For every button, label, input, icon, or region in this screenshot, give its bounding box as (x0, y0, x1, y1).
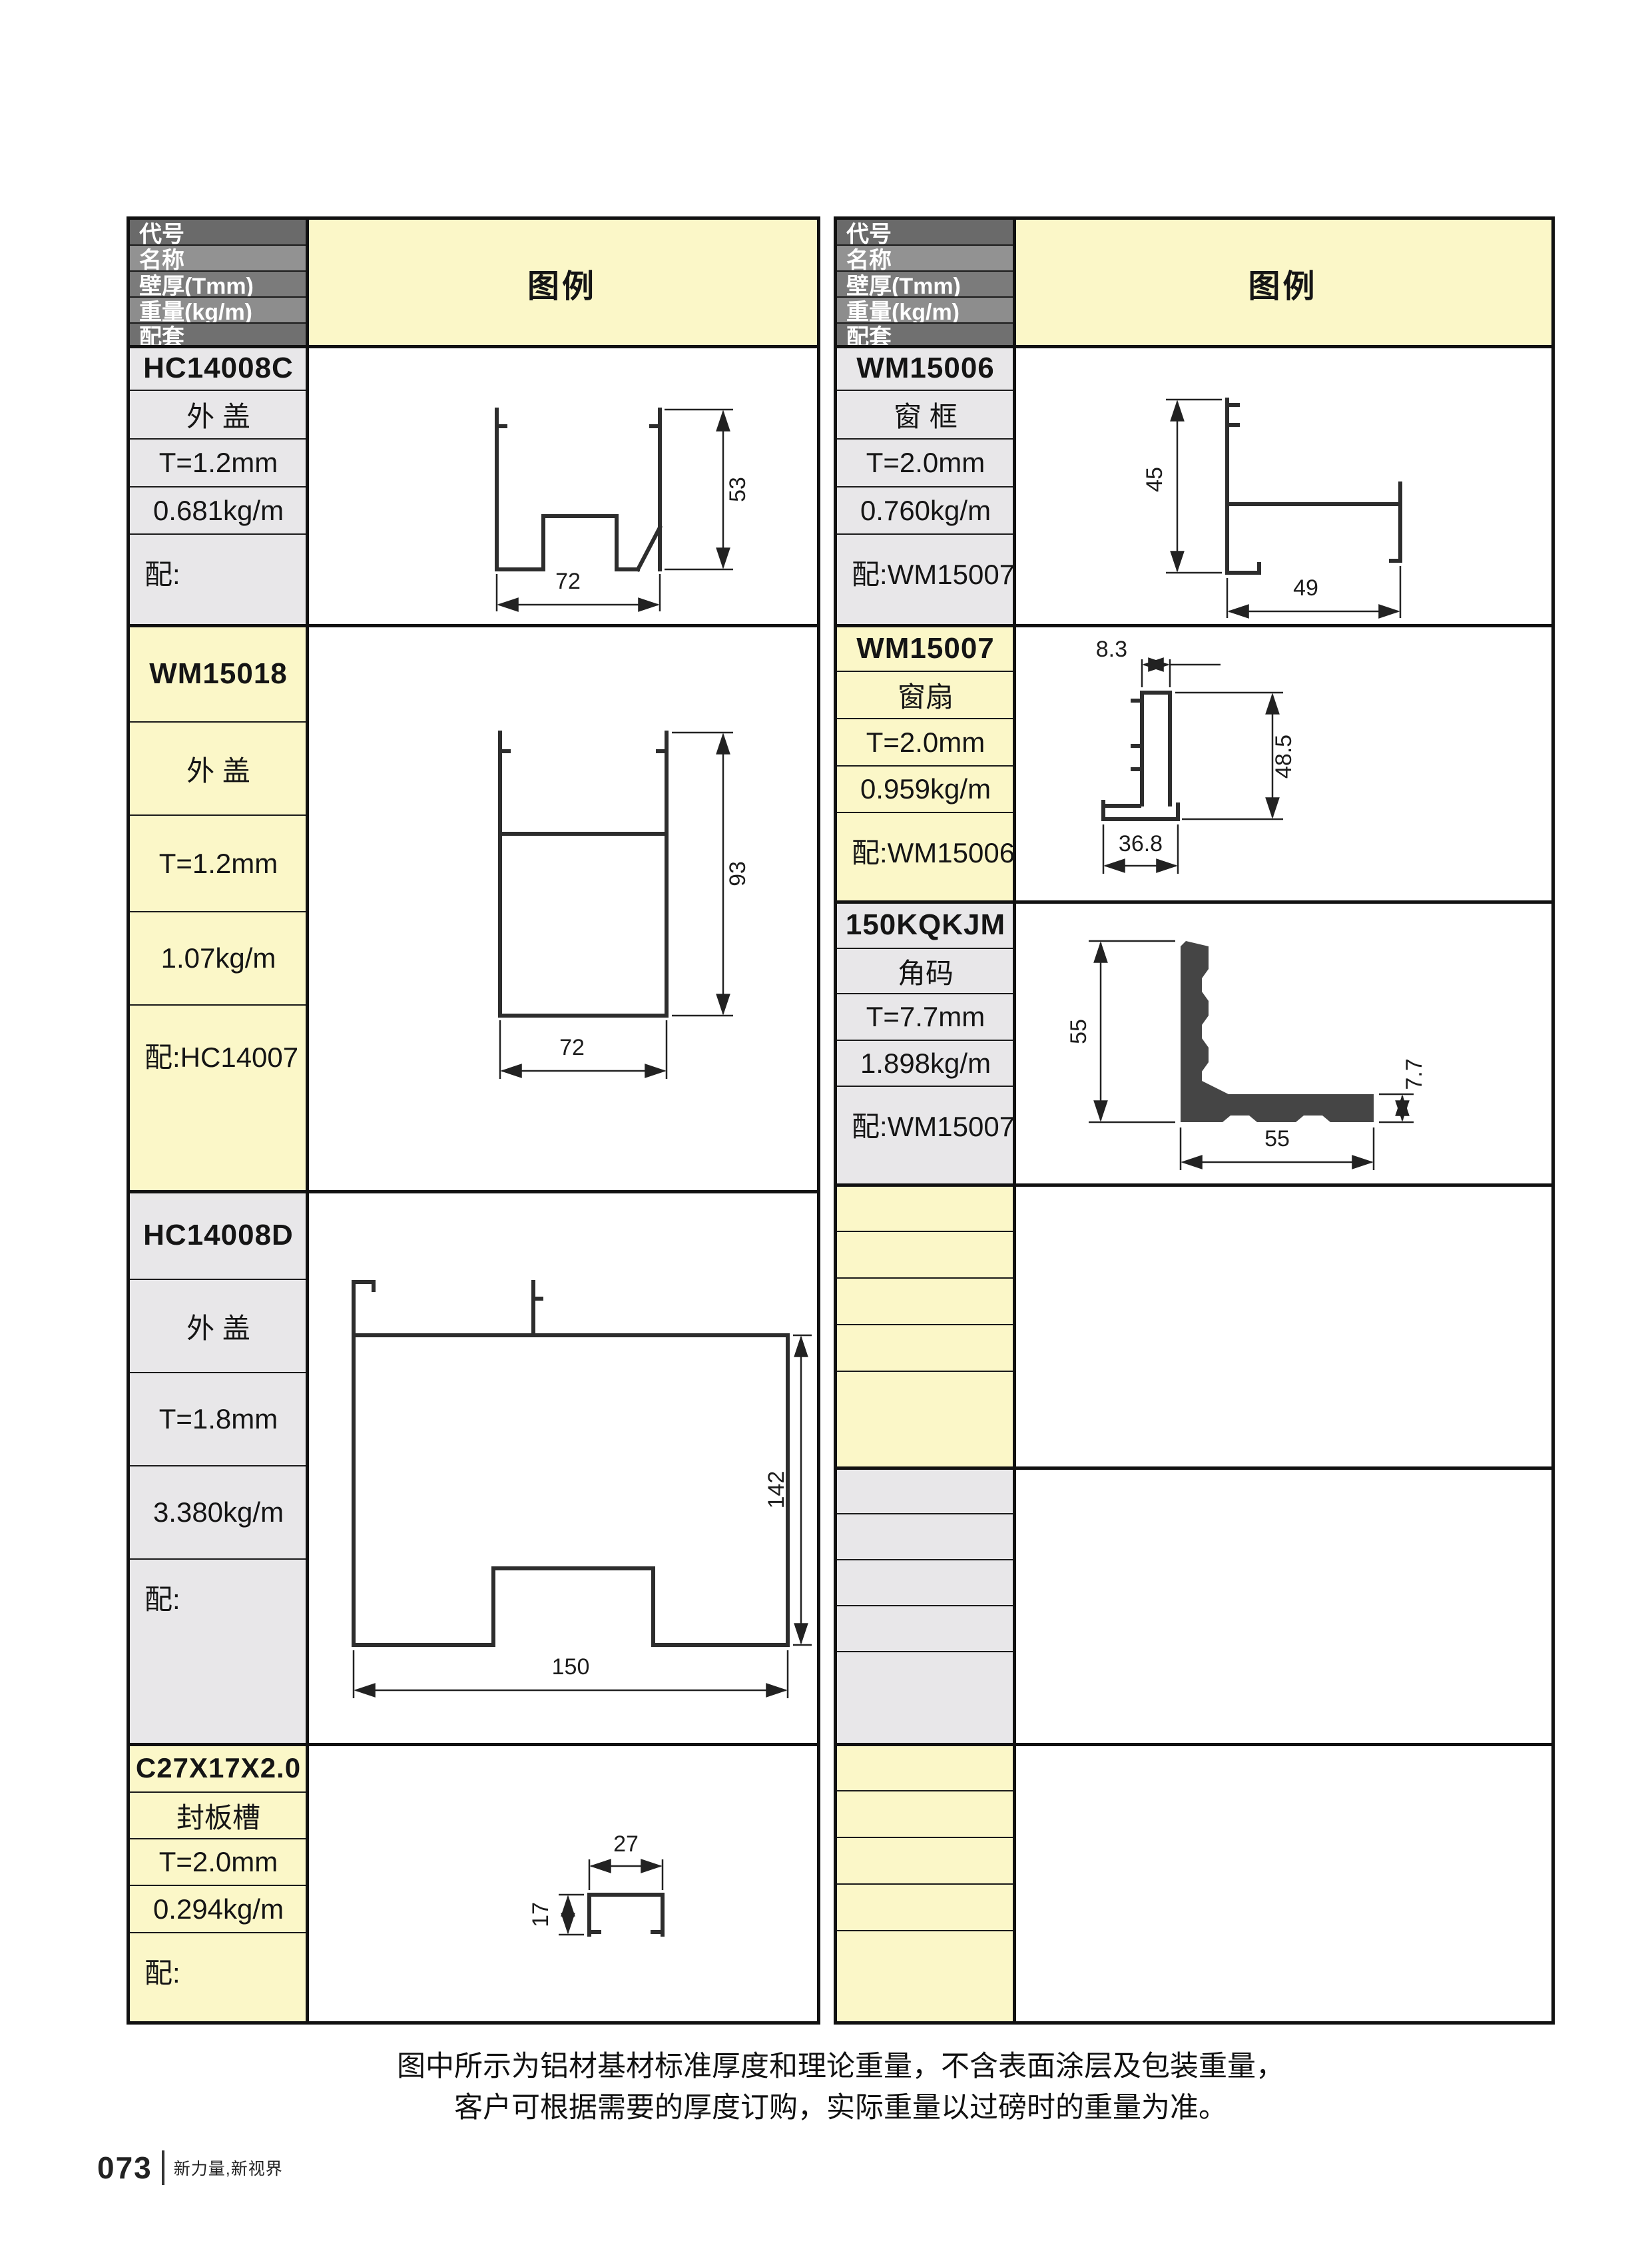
dim-height: 93 (725, 861, 750, 886)
page-footer: 073 新力量,新视界 (97, 2150, 283, 2186)
header-code: 代号 (130, 220, 307, 246)
cell-thickness: T=2.0mm (130, 1839, 307, 1886)
cell-name: 角码 (837, 949, 1014, 994)
dim-width: 72 (555, 569, 581, 594)
empty-cell (837, 1791, 1014, 1838)
cell-code: HC14008D (130, 1192, 307, 1280)
empty-cell (837, 1372, 1014, 1468)
rule (130, 1743, 817, 1746)
cell-mate: 配: (130, 1933, 307, 2021)
hc14008c-drawing: 53 72 (307, 346, 817, 626)
rule (837, 1466, 1551, 1470)
cell-thickness: T=1.2mm (130, 440, 307, 487)
header-weight: 重量(kg/m) (837, 298, 1014, 324)
header-mate: 配套 (837, 324, 1014, 346)
cell-mate: 配:WM15007 (837, 1087, 1014, 1185)
hc14008d-drawing: 142 150 (307, 1192, 817, 1745)
empty-cell (837, 1560, 1014, 1606)
page-footer-divider (162, 2150, 164, 2185)
dim-top-width: 8.3 (1096, 637, 1127, 662)
rule (837, 900, 1551, 904)
c27-drawing: 27 17 (307, 1745, 817, 2021)
cell-code: WM15018 (130, 626, 307, 723)
page-footer-slogan: 新力量,新视界 (174, 2156, 283, 2180)
dim-height: 53 (725, 477, 750, 502)
footnote: 图中所示为铝材基材标准厚度和理论重量，不含表面涂层及包装重量， 客户可根据需要的… (127, 2046, 1555, 2128)
header-mate: 配套 (130, 324, 307, 346)
dim-width: 72 (559, 1035, 585, 1060)
wm15018-drawing: 93 72 (307, 626, 817, 1192)
empty-cell (837, 1325, 1014, 1372)
dim-width: 27 (613, 1831, 639, 1857)
cell-name: 窗 框 (837, 391, 1014, 440)
cell-thickness: T=2.0mm (837, 719, 1014, 767)
rule (837, 1183, 1551, 1187)
corner-bracket-drawing: 55 55 7.7 (1014, 902, 1551, 1185)
cell-name: 封板槽 (130, 1793, 307, 1839)
column-divider (1013, 220, 1016, 2021)
cell-name: 窗扇 (837, 672, 1014, 719)
catalog-page: 代号 名称 壁厚(Tmm) 重量(kg/m) 配套 图例 HC14008C 外 … (0, 0, 1652, 2241)
header-thickness: 壁厚(Tmm) (837, 272, 1014, 298)
rule (837, 1743, 1551, 1746)
empty-cell (837, 1838, 1014, 1885)
empty-diagram-cell (1014, 1185, 1551, 1468)
empty-cell (837, 1279, 1014, 1325)
header-weight: 重量(kg/m) (130, 298, 307, 324)
cell-weight: 0.760kg/m (837, 487, 1014, 535)
dim-height: 45 (1142, 467, 1167, 492)
cell-mate: 配:WM15007 (837, 535, 1014, 626)
rule (130, 624, 817, 627)
rule (837, 624, 1551, 627)
dim-thickness: 7.7 (1402, 1058, 1427, 1090)
cell-code: WM15007 (837, 626, 1014, 672)
empty-diagram-cell (1014, 1468, 1551, 1745)
profile-table-right: 代号 名称 壁厚(Tmm) 重量(kg/m) 配套 图例 WM15006 窗 框… (834, 216, 1555, 2025)
cell-mate: 配:WM15006 (837, 813, 1014, 902)
cell-name: 外 盖 (130, 723, 307, 816)
page-number: 073 (97, 2150, 152, 2186)
dim-height: 55 (1066, 1019, 1091, 1044)
dim-width: 150 (552, 1654, 590, 1680)
cell-weight: 0.681kg/m (130, 487, 307, 535)
cell-code: C27X17X2.0 (130, 1745, 307, 1793)
cell-mate: 配: (130, 535, 307, 626)
dim-width: 49 (1293, 575, 1318, 601)
profile-table-left: 代号 名称 壁厚(Tmm) 重量(kg/m) 配套 图例 HC14008C 外 … (127, 216, 820, 2025)
header-name: 名称 (837, 246, 1014, 272)
footnote-line1: 图中所示为铝材基材标准厚度和理论重量，不含表面涂层及包装重量， (127, 2046, 1555, 2087)
empty-cell (837, 1514, 1014, 1560)
cell-weight: 1.07kg/m (130, 912, 307, 1006)
legend-header: 图例 (307, 220, 817, 346)
empty-cell (837, 1185, 1014, 1232)
empty-cell (837, 1652, 1014, 1745)
header-name: 名称 (130, 246, 307, 272)
header-thickness: 壁厚(Tmm) (130, 272, 307, 298)
cell-weight: 1.898kg/m (837, 1041, 1014, 1087)
cell-mate: 配:HC14007 (130, 1006, 307, 1192)
legend-header: 图例 (1014, 220, 1551, 346)
empty-diagram-cell (1014, 1745, 1551, 2021)
empty-cell (837, 1232, 1014, 1279)
cell-weight: 0.959kg/m (837, 767, 1014, 813)
empty-cell (837, 1745, 1014, 1791)
cell-thickness: T=7.7mm (837, 994, 1014, 1041)
cell-weight: 3.380kg/m (130, 1466, 307, 1560)
column-divider (306, 220, 309, 2021)
cell-mate: 配: (130, 1560, 307, 1745)
cell-code: WM15006 (837, 346, 1014, 391)
header-code: 代号 (837, 220, 1014, 246)
diagram-wm15007: 8.3 48.5 36.8 (1014, 626, 1551, 902)
cell-thickness: T=1.2mm (130, 816, 307, 912)
dim-height: 17 (528, 1902, 553, 1927)
footnote-line2: 客户可根据需要的厚度订购，实际重量以过磅时的重量为准。 (127, 2087, 1555, 2128)
wm15007-drawing: 8.3 48.5 36.8 (1014, 626, 1551, 902)
cell-name: 外 盖 (130, 391, 307, 440)
diagram-c27x17x2: 27 17 (307, 1745, 817, 2021)
empty-cell (837, 1885, 1014, 1931)
dim-height: 142 (764, 1471, 789, 1509)
cell-thickness: T=1.8mm (130, 1373, 307, 1466)
dim-height: 48.5 (1271, 735, 1296, 779)
dim-width: 55 (1264, 1126, 1290, 1151)
cell-weight: 0.294kg/m (130, 1886, 307, 1933)
bracket-shape (1181, 941, 1374, 1122)
diagram-hc14008d: 142 150 (307, 1192, 817, 1745)
cell-code: HC14008C (130, 346, 307, 391)
empty-cell (837, 1931, 1014, 2021)
wm15006-drawing: 45 49 (1014, 346, 1551, 626)
diagram-hc14008c: 53 72 (307, 346, 817, 626)
rule (837, 345, 1551, 348)
diagram-wm15006: 45 49 (1014, 346, 1551, 626)
cell-name: 外 盖 (130, 1280, 307, 1373)
cell-thickness: T=2.0mm (837, 440, 1014, 487)
empty-cell (837, 1606, 1014, 1652)
cell-code: 150KQKJM (837, 902, 1014, 949)
diagram-150kqkjm: 55 55 7.7 (1014, 902, 1551, 1185)
diagram-wm15018: 93 72 (307, 626, 817, 1192)
rule (130, 345, 817, 348)
empty-cell (837, 1468, 1014, 1514)
rule (130, 1190, 817, 1193)
dim-bottom-width: 36.8 (1119, 831, 1163, 856)
